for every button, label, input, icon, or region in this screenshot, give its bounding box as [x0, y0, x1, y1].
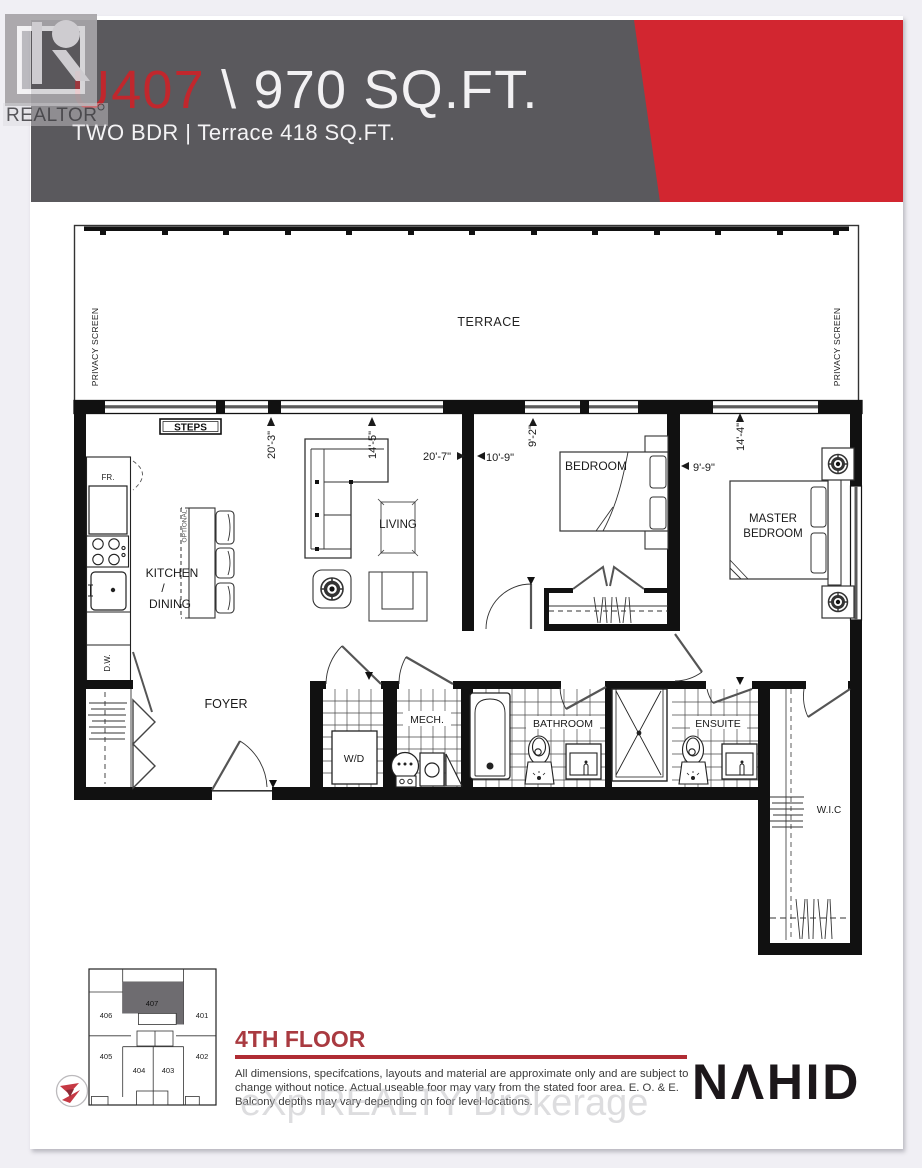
svg-text:TERRACE: TERRACE — [457, 315, 520, 329]
svg-text:DINING: DINING — [149, 597, 191, 611]
svg-text:14'-5": 14'-5" — [367, 431, 379, 459]
svg-text:STEPS: STEPS — [174, 423, 207, 434]
svg-text:MASTER: MASTER — [749, 513, 797, 525]
svg-text:ENSUITE: ENSUITE — [695, 718, 741, 730]
svg-text:PRIVACY SCREEN: PRIVACY SCREEN — [832, 308, 842, 387]
svg-text:BEDROOM: BEDROOM — [565, 459, 627, 473]
svg-text:BEDROOM: BEDROOM — [743, 528, 802, 540]
svg-text:BATHROOM: BATHROOM — [533, 718, 593, 730]
svg-text:MECH.: MECH. — [410, 714, 444, 726]
svg-text:407: 407 — [146, 999, 159, 1008]
svg-text:KITCHEN: KITCHEN — [146, 566, 199, 580]
svg-text:/: / — [161, 581, 165, 595]
svg-text:14'-4": 14'-4" — [735, 423, 747, 451]
svg-text:D.W.: D.W. — [103, 654, 112, 671]
svg-text:9'-9": 9'-9" — [693, 462, 715, 474]
svg-text:W.I.C: W.I.C — [817, 805, 841, 816]
svg-text:405: 405 — [100, 1052, 113, 1061]
svg-text:OPTIONAL: OPTIONAL — [182, 509, 189, 542]
svg-text:FOYER: FOYER — [204, 697, 247, 711]
svg-text:403: 403 — [162, 1066, 175, 1075]
svg-text:402: 402 — [196, 1052, 209, 1061]
svg-text:20'-3": 20'-3" — [266, 431, 278, 459]
svg-text:406: 406 — [100, 1011, 113, 1020]
svg-text:FR.: FR. — [102, 473, 115, 482]
svg-text:401: 401 — [196, 1011, 209, 1020]
svg-text:20'-7": 20'-7" — [423, 451, 451, 463]
svg-text:9'-2": 9'-2" — [527, 425, 539, 447]
svg-text:W/D: W/D — [344, 753, 365, 765]
svg-text:PRIVACY SCREEN: PRIVACY SCREEN — [90, 308, 100, 387]
svg-text:404: 404 — [133, 1066, 146, 1075]
svg-text:LIVING: LIVING — [379, 519, 417, 531]
svg-text:10'-9": 10'-9" — [486, 452, 514, 464]
